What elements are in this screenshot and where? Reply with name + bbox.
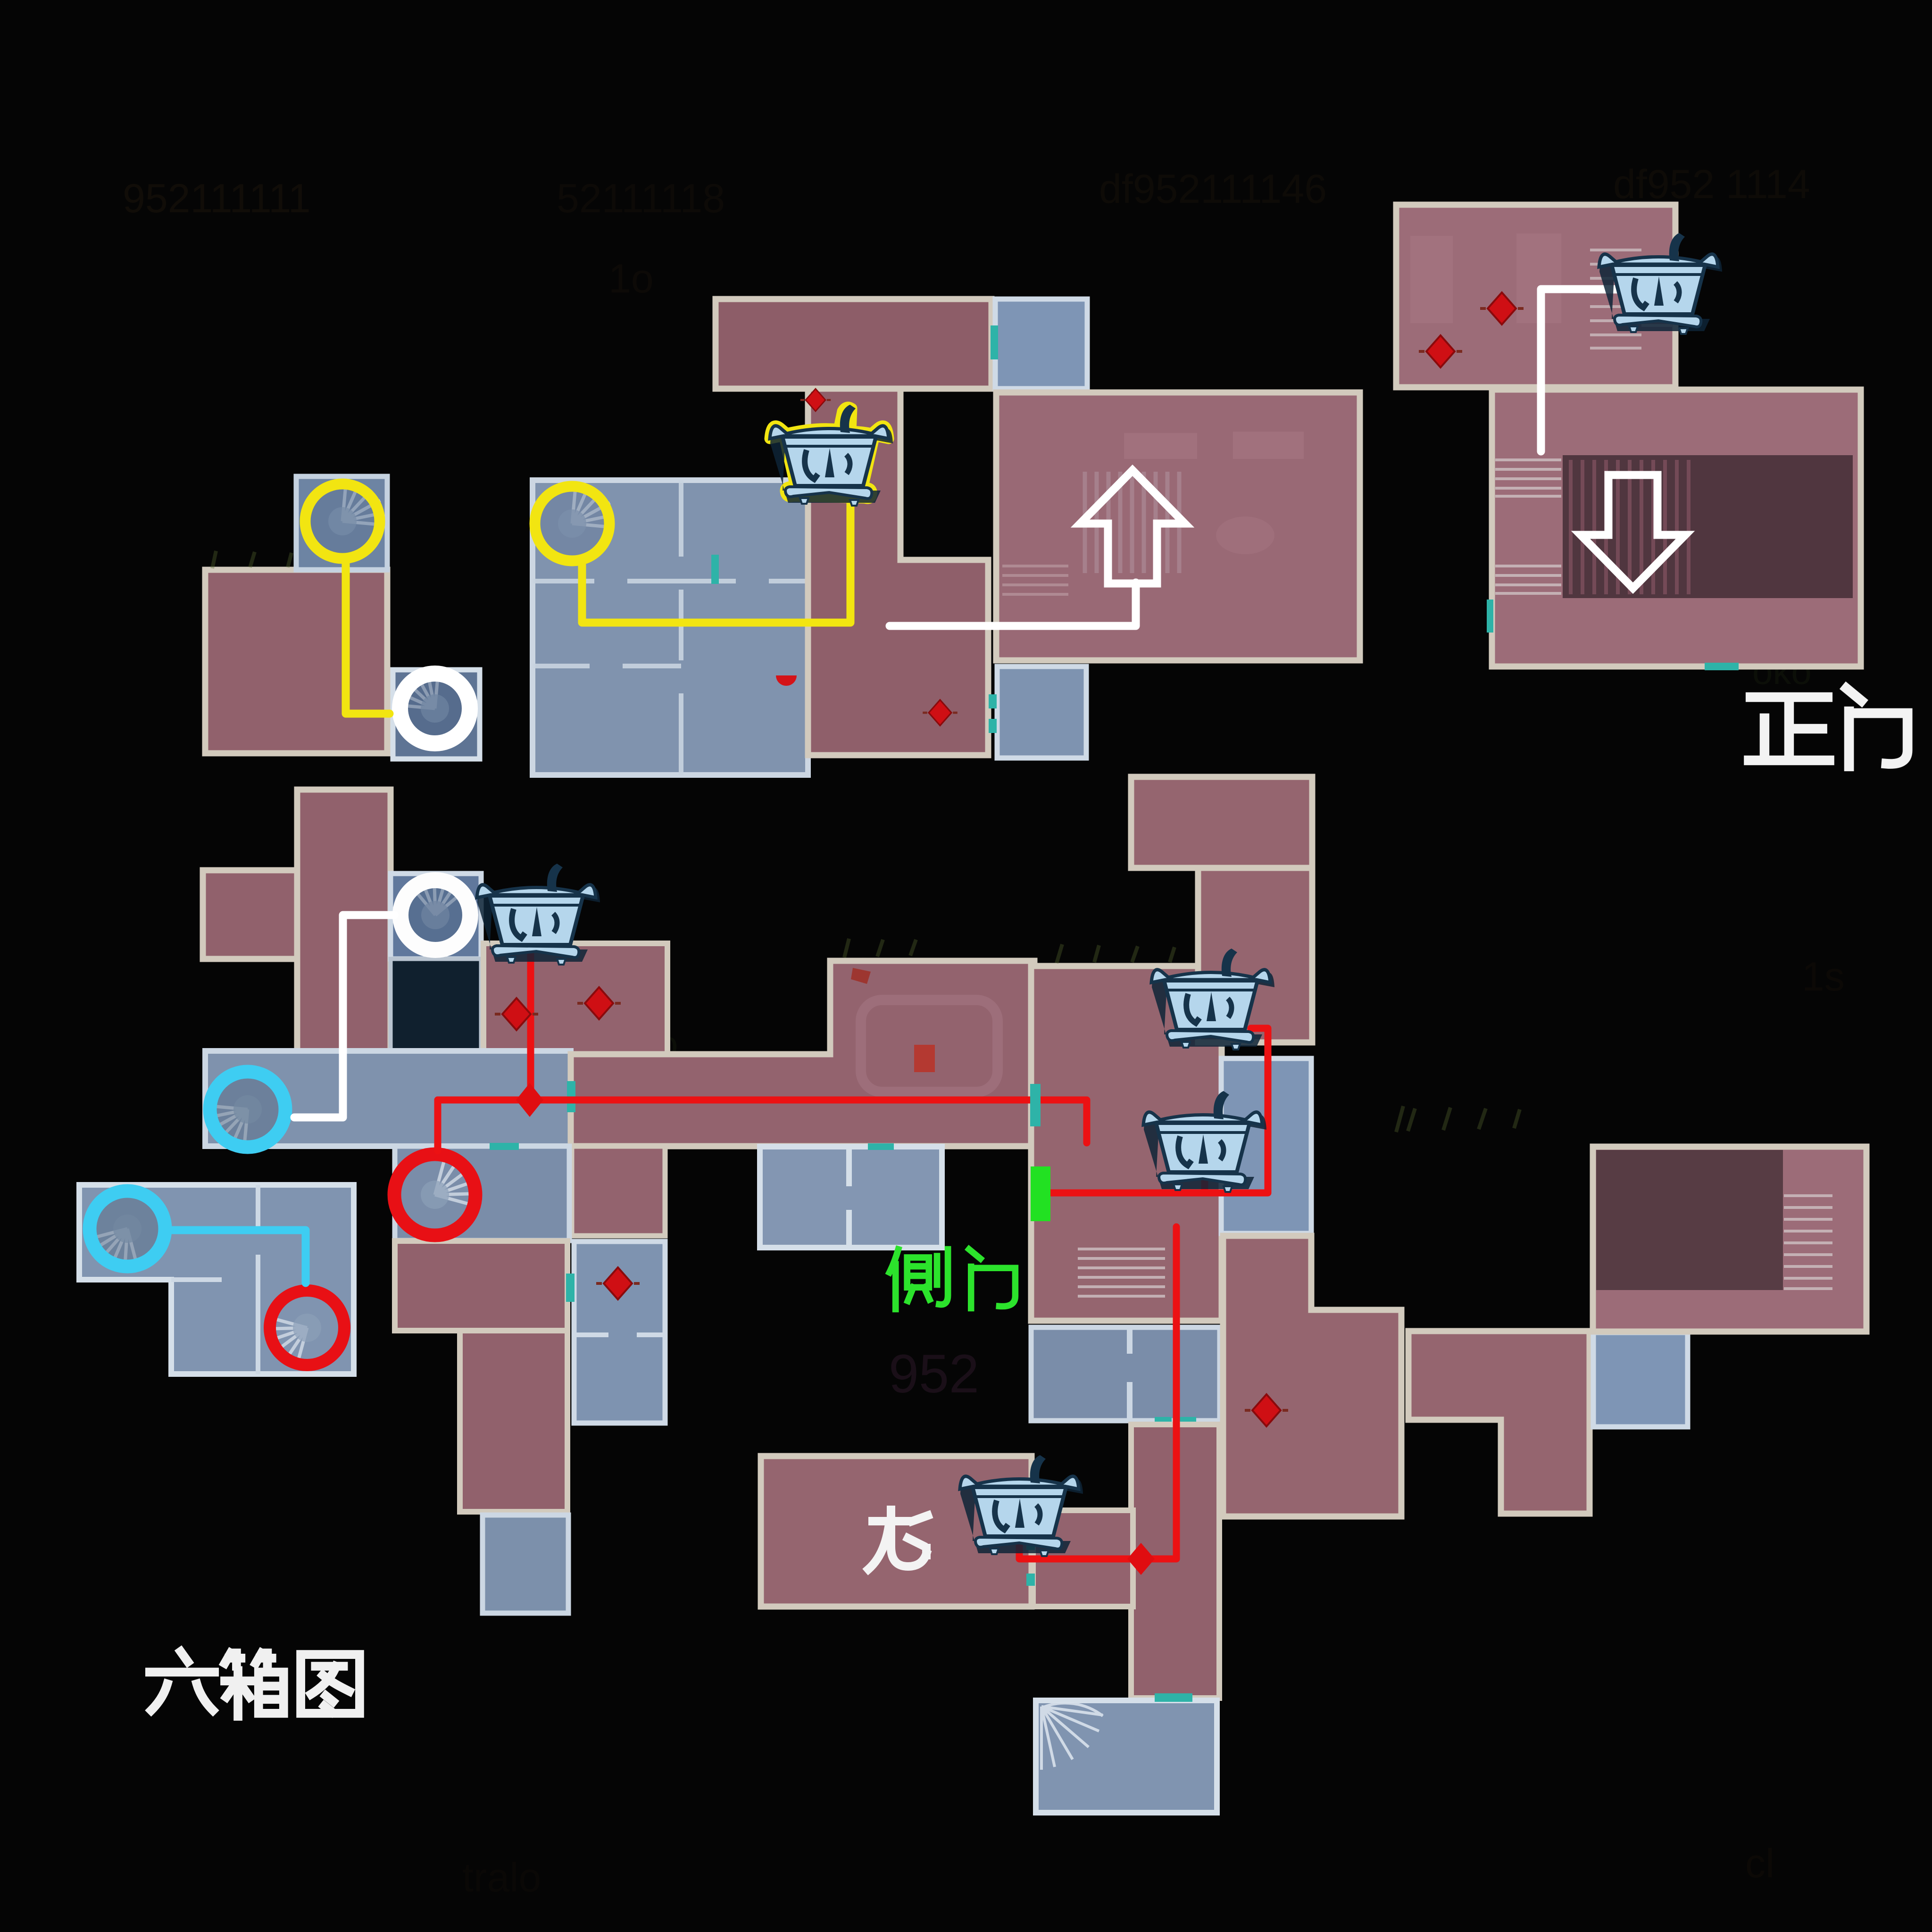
svg-text:52111118: 52111118: [557, 176, 725, 221]
svg-text:tralo: tralo: [462, 1855, 541, 1900]
svg-text:952: 952: [889, 1344, 979, 1404]
svg-text:1o: 1o: [608, 256, 654, 301]
svg-text:1s: 1s: [1802, 954, 1845, 999]
svg-text:cl: cl: [1745, 1841, 1774, 1886]
svg-text:952111111: 952111111: [123, 176, 311, 221]
svg-text:df952111146: df952111146: [1099, 167, 1327, 212]
svg-text:df952 1114: df952 1114: [1613, 162, 1810, 207]
